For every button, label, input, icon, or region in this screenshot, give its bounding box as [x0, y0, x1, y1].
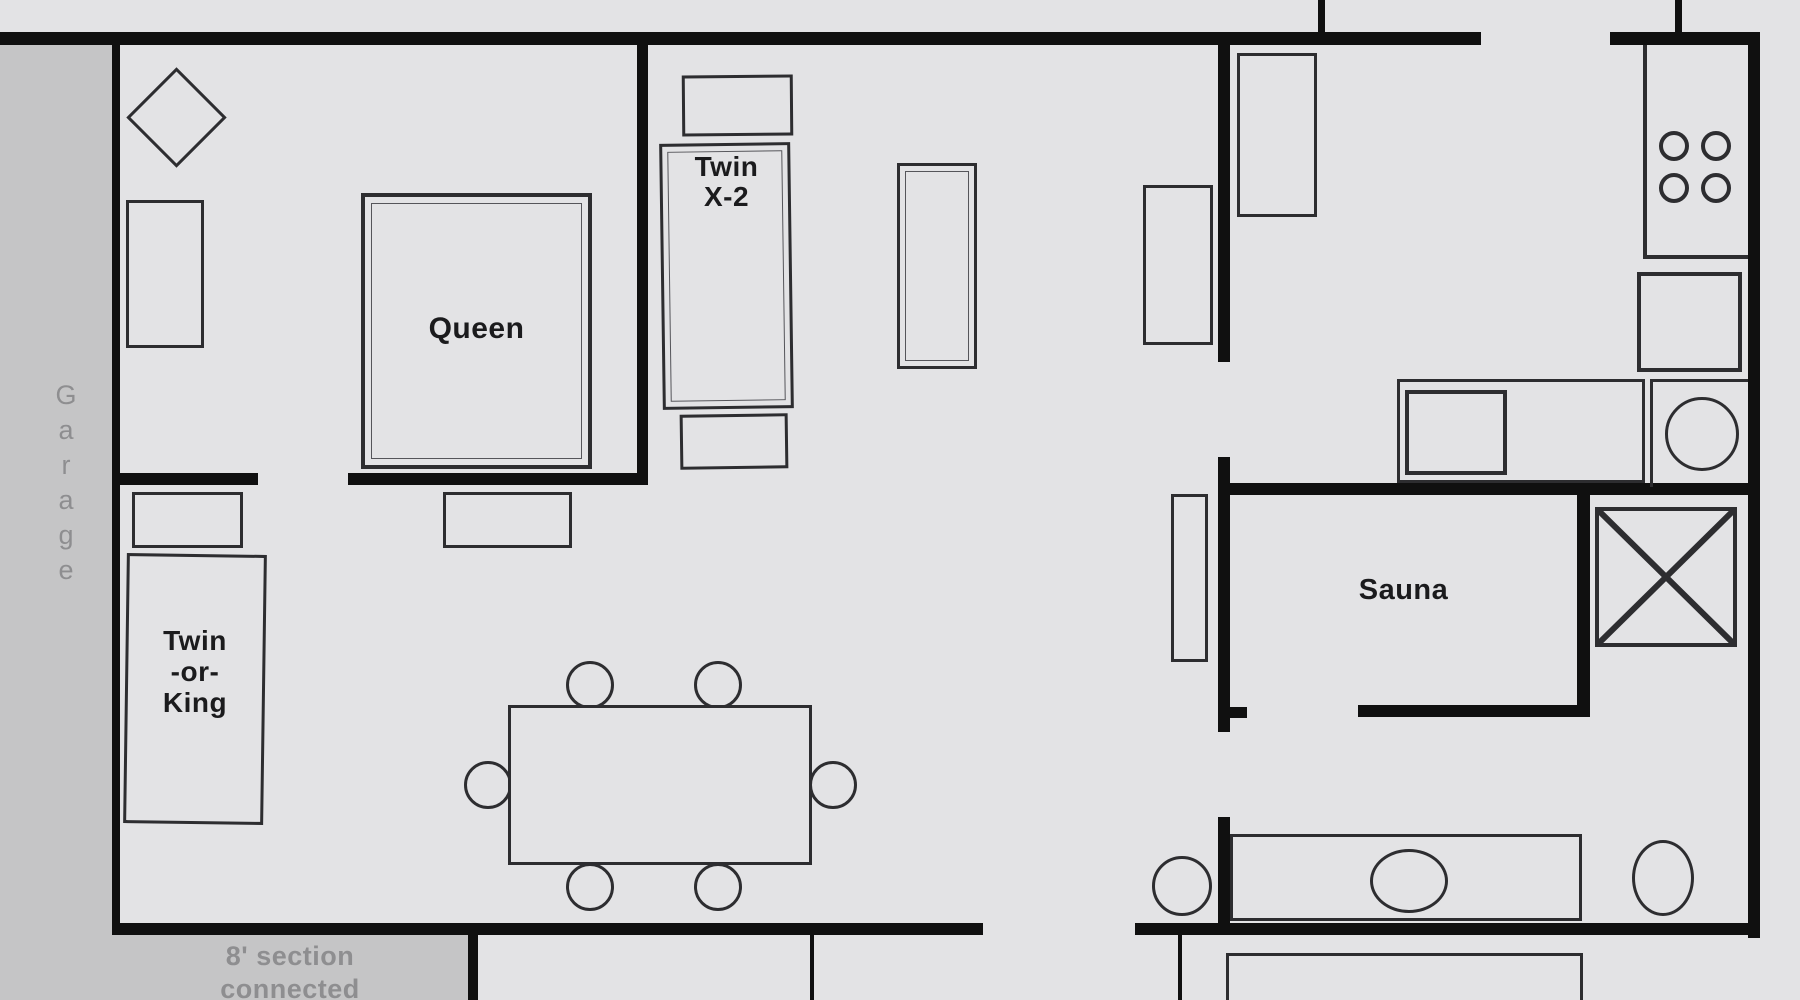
floor-lamp-circle [1152, 856, 1212, 916]
sauna-label: Sauna [1230, 574, 1577, 607]
bottom-section-bed [1226, 953, 1583, 1000]
bedroom-wall-vertical [637, 43, 648, 485]
stove-burner-1 [1659, 131, 1689, 161]
sauna-door-stub [1230, 707, 1247, 718]
counter-cabinet [1405, 390, 1507, 475]
hall-cabinet-b [1143, 185, 1213, 345]
twin-x2-pillow [682, 75, 794, 137]
wall-bottom-left [112, 923, 983, 935]
stove-burner-3 [1659, 173, 1689, 203]
hall-cabinet-a [1237, 53, 1317, 217]
roof-tick-2 [1675, 0, 1682, 33]
twin-x2-label: Twin X-2 [661, 152, 792, 212]
dining-chair-1 [566, 661, 614, 709]
bath-sink-ellipse [1370, 849, 1448, 913]
stove-burner-2 [1701, 131, 1731, 161]
sauna-bottom-wall [1358, 705, 1590, 717]
bedroom-wall-horizontal-2 [348, 473, 648, 485]
sauna-bench [1171, 494, 1208, 662]
dining-chair-5 [566, 863, 614, 911]
nightstand-a [132, 492, 243, 548]
dining-chair-6 [694, 863, 742, 911]
garage-label: Garage [50, 380, 81, 580]
queen-bed-label: Queen [361, 312, 592, 346]
dining-chair-4 [809, 761, 857, 809]
sofa [897, 163, 977, 369]
deck-divider-1 [810, 933, 814, 1000]
dining-chair-2 [694, 661, 742, 709]
twin-or-king-label: Twin -or- King [125, 625, 265, 718]
bedroom-wall-horizontal-1 [118, 473, 258, 485]
shower-stall-icon [1595, 507, 1737, 647]
kitchen-appliance [1637, 272, 1742, 372]
wall-top-left [0, 32, 1481, 45]
deck-divider-2 [1178, 935, 1182, 1000]
hall-wall-upper [1218, 43, 1230, 362]
dresser [126, 200, 204, 348]
stove-burner-4 [1701, 173, 1731, 203]
hall-wall-lower [1218, 817, 1230, 935]
dining-table [508, 705, 812, 865]
floor-plan: Queen Twin -or- King Twin X-2 Sauna [0, 0, 1800, 1000]
nightstand-b [443, 492, 572, 548]
roof-tick-1 [1318, 0, 1325, 33]
stove-counter [1643, 45, 1748, 259]
garage-wall [112, 38, 120, 935]
deck-wall-stub [468, 933, 478, 1000]
connected-section-label: 8' section connected [155, 940, 425, 1000]
twin-x2-footboard [680, 413, 789, 470]
dining-chair-3 [464, 761, 512, 809]
wall-top-right [1610, 32, 1760, 45]
sauna-right-wall [1577, 495, 1590, 717]
sink-basin [1665, 397, 1739, 471]
toilet-ellipse [1632, 840, 1694, 916]
hall-wall-mid [1218, 457, 1230, 732]
corner-table-diamond [126, 67, 226, 167]
